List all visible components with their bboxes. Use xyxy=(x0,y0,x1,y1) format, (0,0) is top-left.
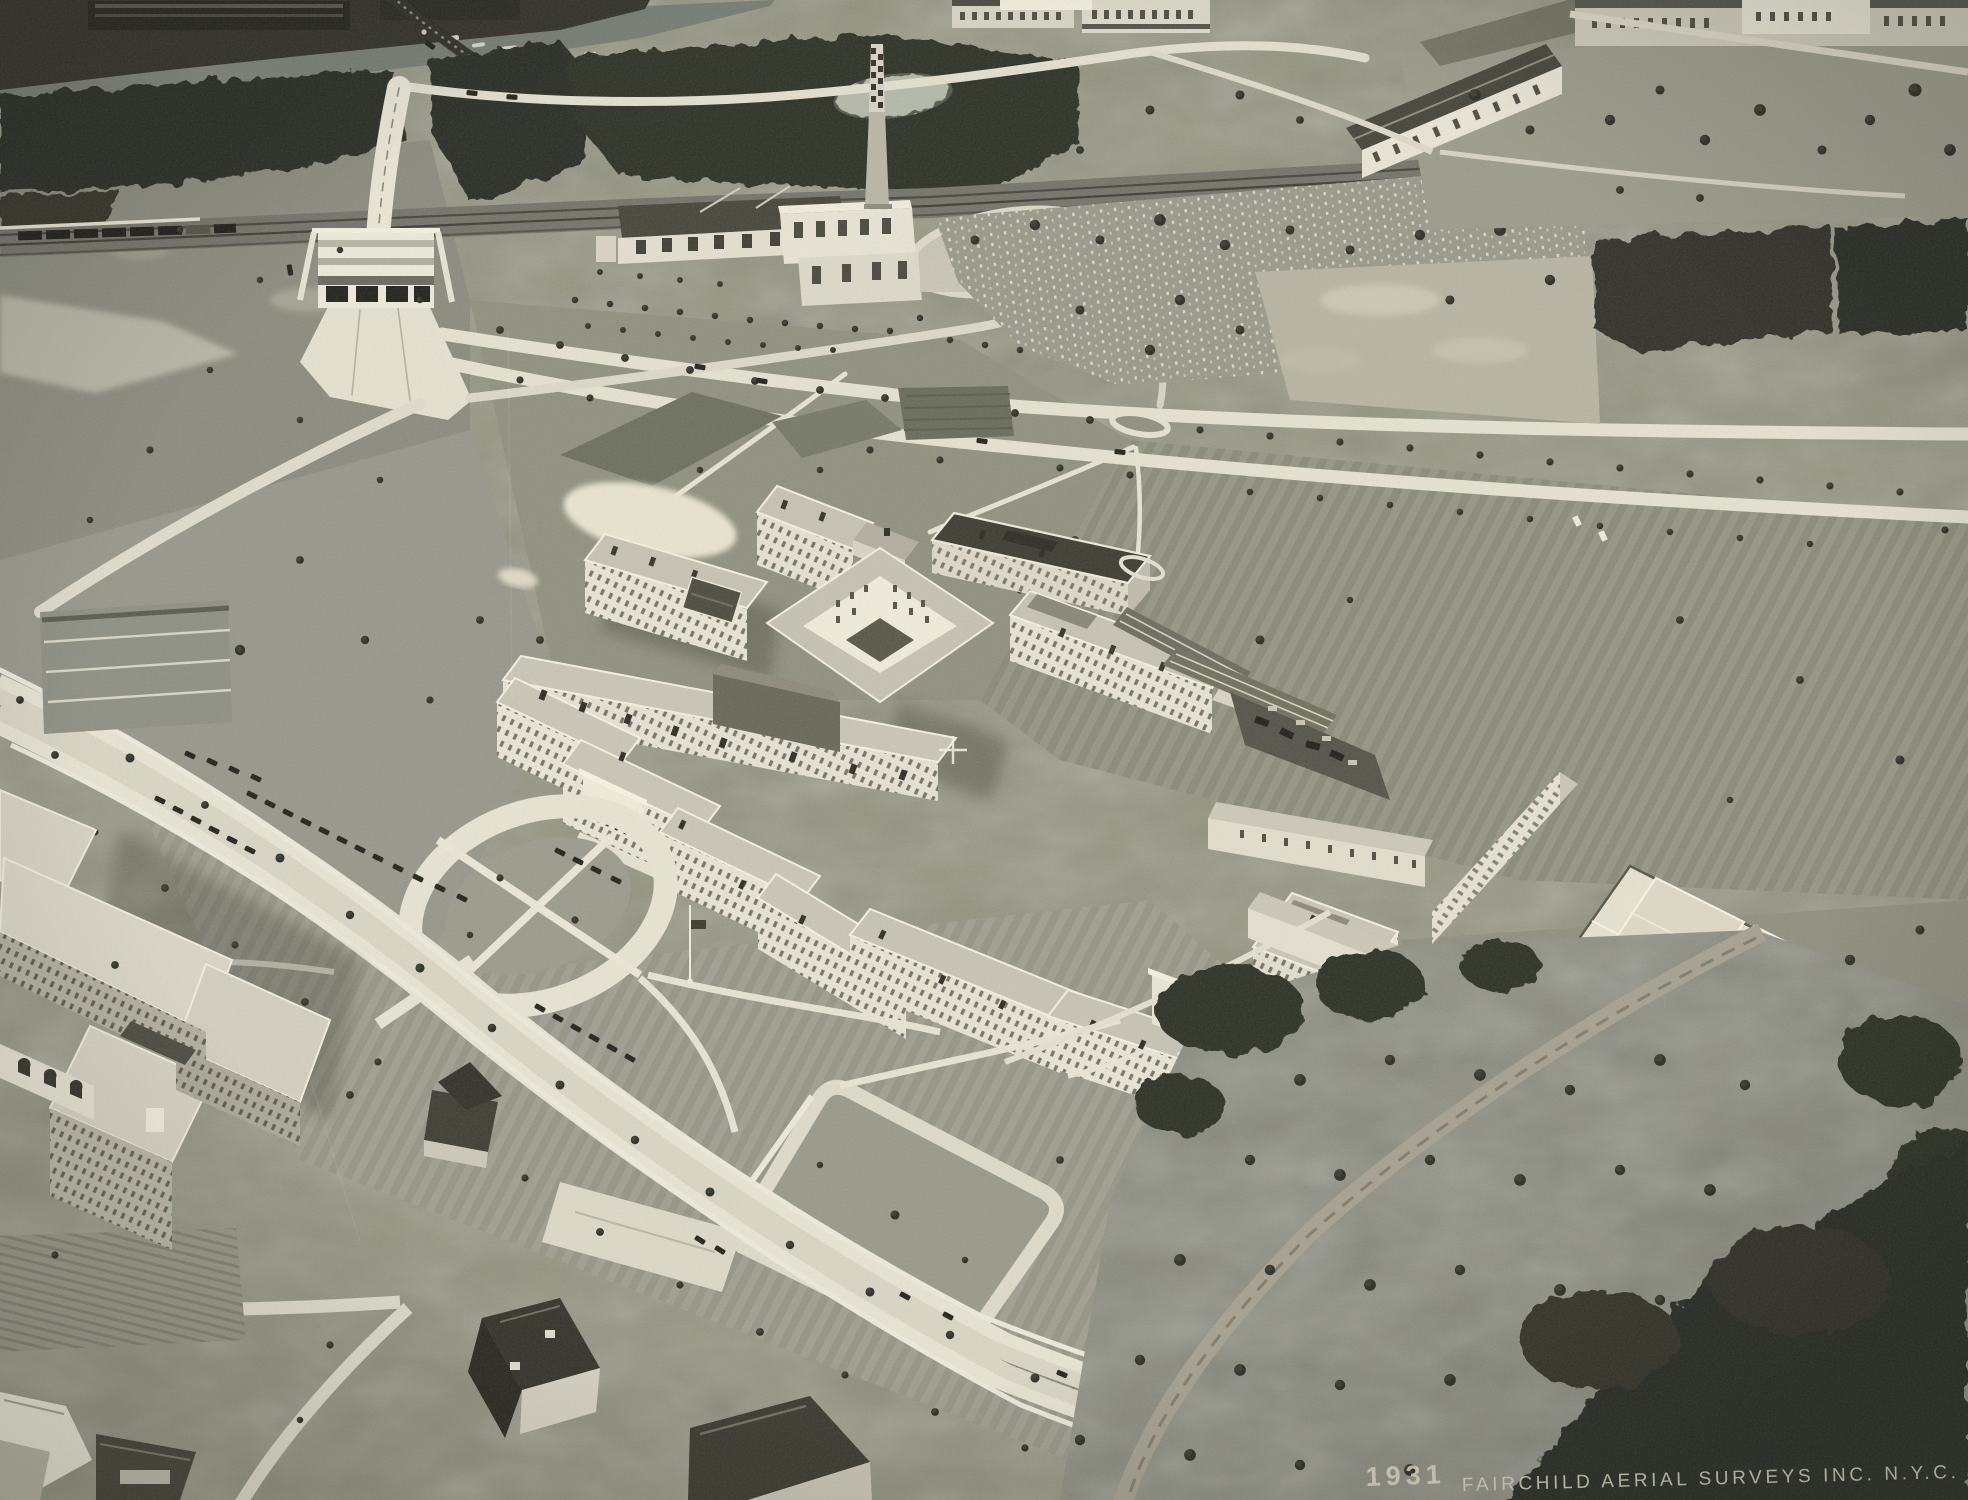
aerial-photograph: 1931 FAIRCHILD AERIAL SURVEYS INC. N.Y.C… xyxy=(0,0,1968,1500)
vignette xyxy=(0,0,1968,1500)
